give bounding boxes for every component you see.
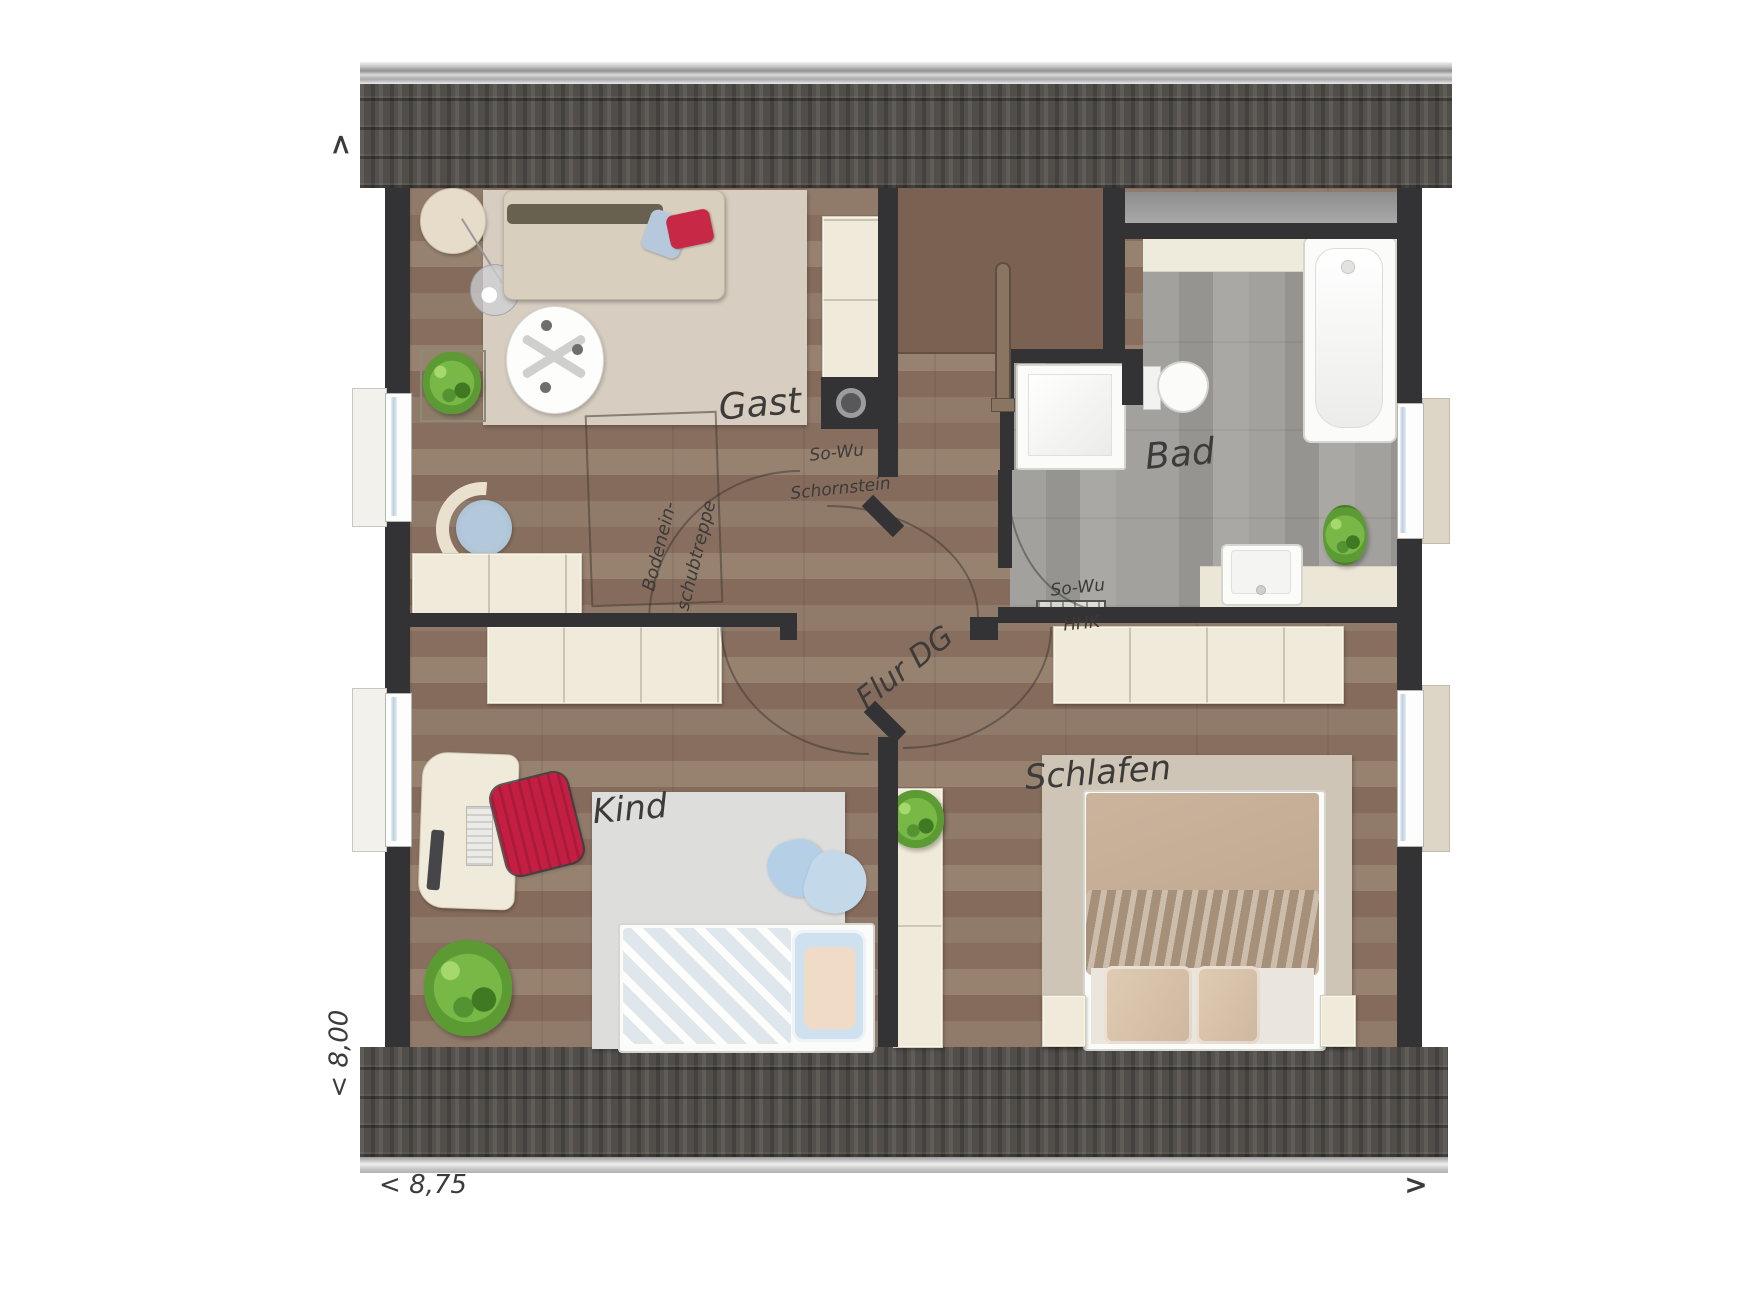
bathtub-drain (1341, 260, 1355, 274)
wall-kind-schlafen (878, 737, 898, 1047)
annotation-line: Bodenein- (638, 500, 680, 594)
floor-plan-page: Gast Bad Kind Schlafen Flur DG So-Wu Sch… (0, 0, 1754, 1315)
window-sill (1422, 685, 1450, 852)
window-kind (385, 693, 412, 847)
window-sill (352, 388, 387, 527)
dimension-width: < 8,75 (368, 1172, 478, 1199)
bed-kind-duvet (623, 928, 791, 1044)
nightstand-left (1042, 995, 1086, 1047)
roof-top (360, 84, 1452, 188)
bed-schlafen-pillow (1104, 966, 1192, 1044)
plant-bad (1323, 505, 1367, 565)
annotation-line: schubtreppe (672, 498, 720, 613)
shower-tray-inner (1028, 374, 1112, 456)
window-kind-glass (391, 697, 397, 841)
plant-gast (423, 352, 481, 414)
chimney-flue (836, 388, 866, 418)
plant-kind (424, 940, 512, 1036)
wall-bath-left (998, 470, 1012, 568)
armchair-seat (456, 500, 512, 556)
bed-kind-pillow-inner (804, 947, 856, 1029)
coffee-table-dot (541, 320, 552, 331)
bathtub-inner (1315, 248, 1383, 428)
window-bad-glass (1400, 407, 1406, 533)
annotation-line: So-Wu (1050, 575, 1106, 601)
wall-gast-bottom (410, 613, 788, 627)
dimension-depth: < 8,00 (326, 996, 353, 1112)
wall-right (1397, 188, 1422, 1047)
stair-railing (995, 262, 1011, 408)
wall-stub-west (780, 613, 797, 640)
sink-faucet (1256, 585, 1266, 595)
bed-schlafen-blanket-fold (1086, 890, 1319, 975)
annotation-schornstein: So-Wu Schornstein (754, 421, 903, 524)
window-sill (1422, 398, 1450, 544)
coffee-table-dot (572, 344, 583, 355)
north-arrow-icon: > (325, 127, 354, 163)
wardrobe-gast (822, 216, 882, 380)
wall-shower-right (1122, 349, 1143, 405)
keyboard (466, 806, 493, 866)
sofa-backrest (507, 204, 663, 224)
wall-left (385, 188, 410, 1047)
annotation-line: Schornstein (789, 473, 891, 503)
dormer-roof-strip (1125, 192, 1397, 223)
roof-ridge-top (360, 62, 1452, 86)
stair-railing-post (991, 398, 1015, 412)
window-gast-glass (391, 397, 397, 516)
nightstand-right (1320, 995, 1356, 1047)
annotation-hhk: So-Wu HHK (1015, 558, 1124, 657)
annotation-line: HHK (1062, 611, 1101, 635)
window-sill (352, 688, 387, 852)
direction-arrow-icon: > (1398, 1170, 1434, 1199)
roof-bottom (360, 1047, 1448, 1157)
wall-bath-top (1125, 223, 1397, 239)
bed-schlafen-pillow (1196, 966, 1260, 1044)
roof-eave-bottom (360, 1157, 1448, 1173)
sideboard-gast (412, 553, 582, 619)
wall-stairs-bath (1103, 188, 1125, 352)
coffee-table-dot (540, 382, 551, 393)
annotation-line: So-Wu (809, 440, 865, 466)
window-schlafen-glass (1400, 694, 1406, 841)
window-gast (385, 393, 412, 522)
